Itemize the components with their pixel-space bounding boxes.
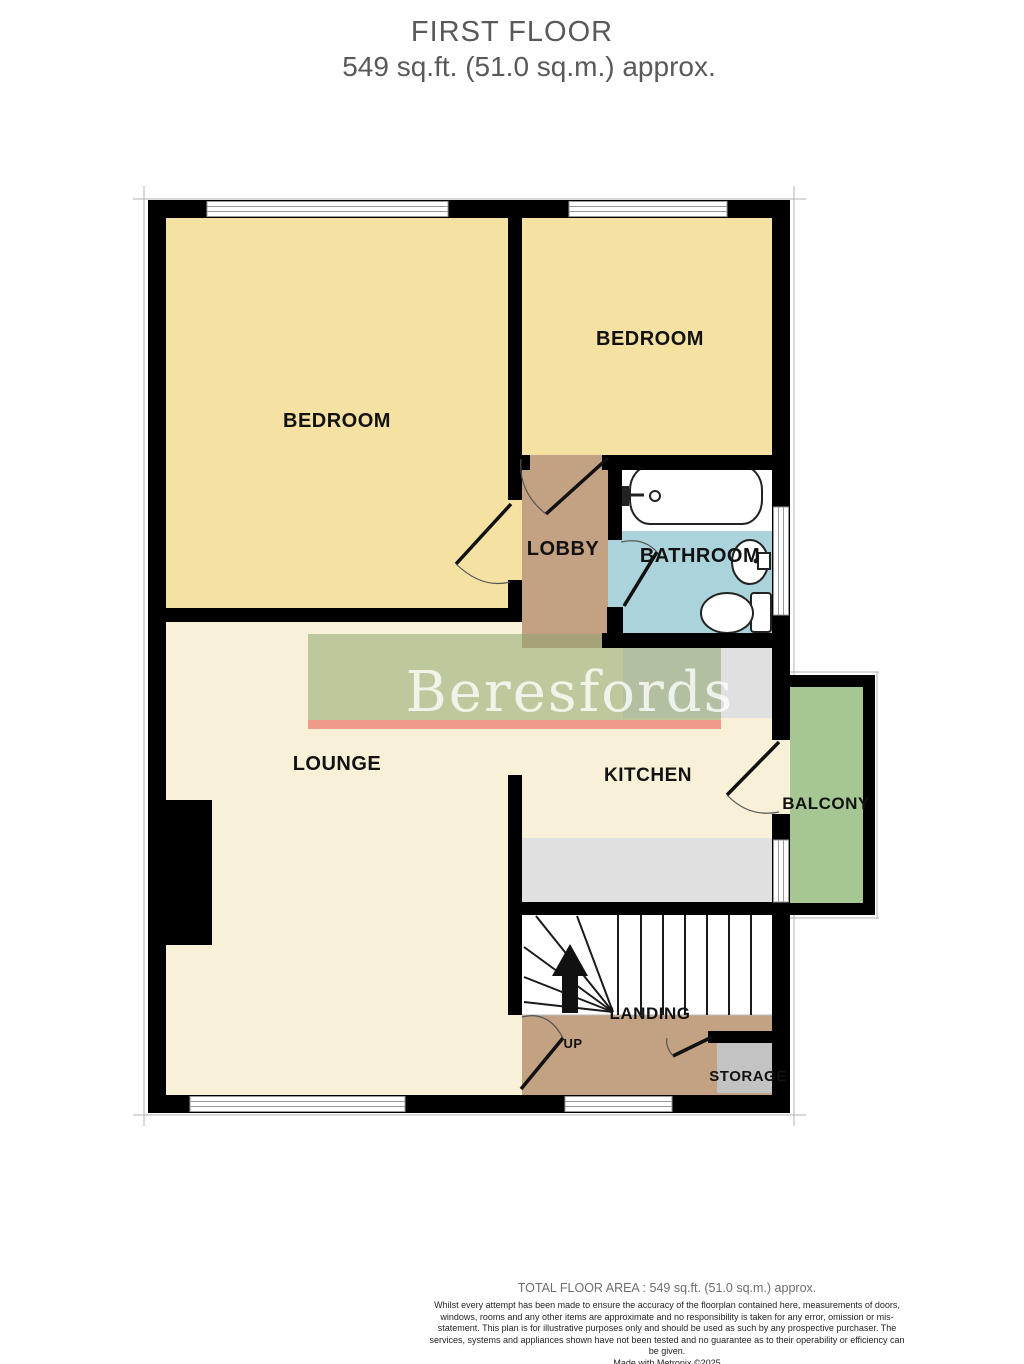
wall-lobby-door-stub [518,455,530,470]
wall-balcony-bottom [790,903,875,915]
watermark-brand-text: Beresfords [406,660,735,725]
floorplan-page: FIRST FLOOR 549 sq.ft. (51.0 sq.m.) appr… [0,0,1024,1364]
lounge-label: LOUNGE [293,753,382,775]
window-landing [565,1097,672,1112]
kitchen-counter-bottom [522,838,772,902]
wall-bathroom-bottom [602,633,790,648]
plan-footer: TOTAL FLOOR AREA : 549 sq.ft. (51.0 sq.m… [357,1281,977,1364]
storage-label: STORAGE [709,1068,786,1085]
floorplan-drawing: Beresfords [0,0,1024,1364]
window-kitchen-balcony [774,840,789,902]
window-bedroom-left [207,202,448,217]
bathroom-label: BATHROOM [640,545,760,567]
landing-label: LANDING [610,1004,691,1023]
kitchen-label: KITCHEN [604,765,692,786]
bedroom-left-label: BEDROOM [283,410,391,432]
bedroom-right-label: BEDROOM [596,328,704,350]
wall-storage-stub [708,1031,790,1043]
window-bedroom-right [569,202,727,217]
stairs-up-label: UP [563,1036,582,1051]
lobby-label: LOBBY [527,538,600,560]
metropix-credit: Made with Metropix ©2025 [357,1358,977,1364]
wall-kitchen-stairs [508,902,790,915]
wall-kitchen-left [508,775,522,1015]
wall-lounge-top [166,608,522,622]
lounge-chimney-breast [166,800,212,945]
balcony-label: BALCONY [782,794,870,813]
wall-lobby-bathroom-upper [608,455,622,540]
toilet-cistern-icon [751,593,771,632]
disclaimer-text: Whilst every attempt has been made to en… [428,1300,906,1358]
window-bathroom [774,507,789,615]
bathtub-tap-icon [622,486,629,506]
window-lounge [190,1097,405,1112]
wall-balcony-top [790,675,875,687]
wall-bathroom-top [602,455,772,470]
total-floor-area: TOTAL FLOOR AREA : 549 sq.ft. (51.0 sq.m… [357,1281,977,1295]
wall-left [148,200,166,1113]
toilet-bowl-icon [701,593,753,633]
wall-right-upper [772,200,790,740]
brand-watermark: Beresfords [308,634,734,729]
